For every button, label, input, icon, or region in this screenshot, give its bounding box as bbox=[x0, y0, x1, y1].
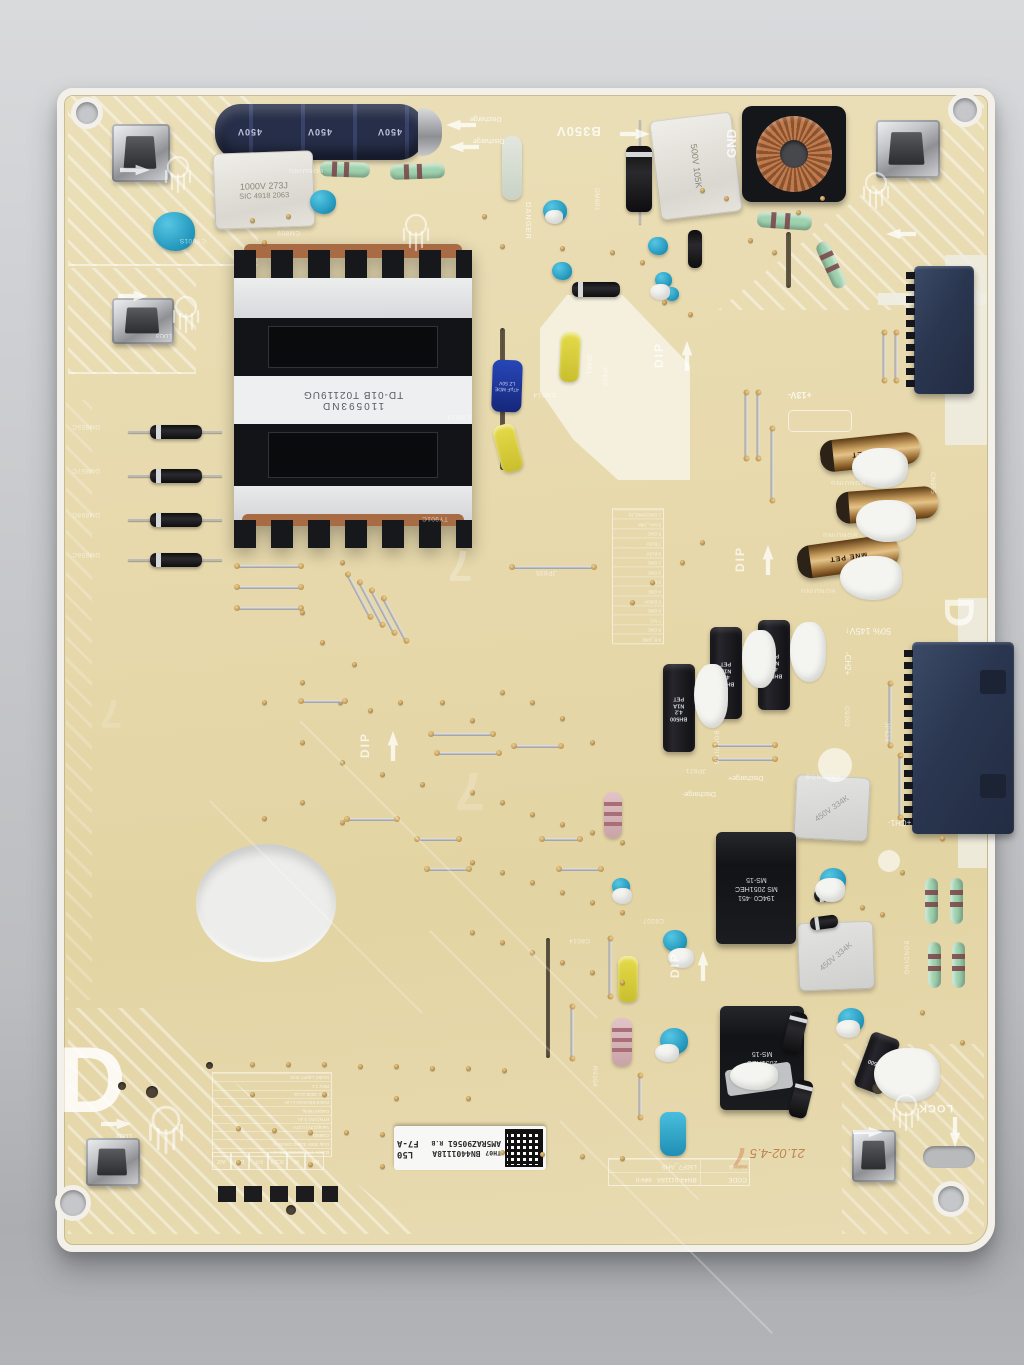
solder-pad bbox=[530, 812, 535, 817]
solder-pad bbox=[620, 840, 625, 845]
designator-text: JP821 bbox=[686, 767, 706, 774]
via-hole bbox=[146, 1086, 158, 1098]
jumper-wire bbox=[348, 818, 396, 821]
film-capacitor-334k: 450V 334K bbox=[797, 921, 875, 992]
via-hole bbox=[286, 1205, 296, 1215]
transformer-marking: MS-15 bbox=[752, 1050, 773, 1057]
sticker-serial: AM5RAZ90561 bbox=[448, 1139, 501, 1148]
segment-cell: VL bbox=[287, 1152, 306, 1170]
designator-label: CM813 bbox=[470, 412, 493, 430]
via-hole bbox=[206, 1062, 213, 1069]
jumper-wire bbox=[238, 607, 300, 610]
jumper-wire bbox=[302, 700, 344, 703]
solder-pad bbox=[820, 196, 825, 201]
silk-danger-label: DANGER bbox=[524, 202, 533, 240]
silk-gnd-label: GND bbox=[724, 129, 739, 158]
glue-blob bbox=[742, 630, 776, 688]
spec-row: Duty 380V 330Hz Dimming bbox=[213, 1139, 331, 1147]
silk-pin-table: 9 B_GND8 GND7 N.C6 GND5 B350V4 GND3 N.C2… bbox=[612, 508, 664, 644]
solder-pad bbox=[650, 580, 655, 585]
pin-table-row: 9 B13V bbox=[613, 547, 663, 557]
pin-table-row: 7 B13V bbox=[613, 538, 663, 548]
output-connector-large bbox=[912, 642, 1014, 834]
jumper-wire bbox=[432, 733, 492, 736]
cap-marking: 450V bbox=[307, 127, 332, 137]
film-cap-marking: 500V 105K bbox=[688, 143, 703, 188]
cap-marking: 450V bbox=[237, 127, 262, 137]
solder-pad bbox=[880, 912, 885, 917]
solder-pad bbox=[940, 836, 945, 841]
designator-label: DM801 bbox=[600, 180, 623, 198]
solder-pad bbox=[440, 700, 445, 705]
solder-pad bbox=[470, 718, 475, 723]
jumper-wire bbox=[515, 745, 560, 748]
designator-text: DM857C bbox=[72, 467, 100, 474]
solder-pad bbox=[286, 1062, 291, 1067]
solder-pad bbox=[560, 890, 565, 895]
silkscreen-dip-label: DIP bbox=[668, 976, 694, 994]
solder-pad bbox=[322, 1092, 327, 1097]
designator-label: JP835 bbox=[556, 568, 576, 586]
jumper-wire bbox=[560, 868, 600, 871]
qr-code bbox=[505, 1129, 543, 1167]
solder-pad bbox=[860, 905, 865, 910]
pin-table-row: 2 GND bbox=[613, 567, 663, 577]
jumper-wire bbox=[238, 565, 300, 568]
yellow-capacitor bbox=[559, 332, 582, 383]
jumper-wire bbox=[571, 1008, 574, 1058]
silkscreen-hatch-left-strip bbox=[66, 400, 92, 1000]
lps-transformer: 194C0 ·451 MS 2051HEC MS-15 bbox=[716, 832, 796, 944]
solder-pad bbox=[748, 238, 753, 243]
bonding-text: BONDING bbox=[713, 730, 719, 765]
transformer-core bbox=[234, 318, 472, 376]
pin-table-row: 5 GND bbox=[613, 528, 663, 538]
silk-spec-table: B350V 777 101/201 273H4ADuty 380V 330Hz … bbox=[212, 1072, 332, 1157]
designator-label: C8014 bbox=[590, 936, 611, 954]
designator-label: JP826 bbox=[890, 714, 910, 732]
solder-pad bbox=[262, 816, 267, 821]
designator-text: C9202 bbox=[843, 706, 850, 727]
solder-pad bbox=[394, 1064, 399, 1069]
silk-edge-letter: D bbox=[935, 597, 983, 627]
designator-label: JP850 bbox=[608, 358, 628, 376]
jumper-wire bbox=[757, 394, 760, 458]
solder-pad bbox=[380, 1164, 385, 1169]
solder-pad bbox=[590, 970, 595, 975]
solder-pad bbox=[502, 1068, 507, 1073]
mint-resistor bbox=[925, 878, 938, 924]
designator-label: CY801S bbox=[206, 236, 233, 254]
transformer-core-window bbox=[268, 326, 438, 368]
glue-blob bbox=[730, 1062, 778, 1090]
silk-ch2-label: -CH2+ bbox=[843, 652, 852, 675]
jumper-wire bbox=[895, 334, 898, 380]
solder-pad bbox=[394, 1096, 399, 1101]
solder-pad bbox=[272, 1128, 277, 1133]
watermark-text: 7 bbox=[448, 540, 472, 590]
pin-table-row: 8 GND bbox=[613, 624, 663, 634]
toroid-core-hole bbox=[780, 140, 808, 168]
standing-diode bbox=[626, 146, 652, 212]
sticker-rev: R.B bbox=[431, 1139, 443, 1147]
blue-radial-capacitor bbox=[660, 1112, 686, 1156]
hand-icon bbox=[168, 292, 204, 341]
solder-pad bbox=[540, 1152, 545, 1157]
axial-diode bbox=[150, 469, 202, 483]
solder-pad bbox=[322, 1062, 327, 1067]
transformer-label: TD-01B T02119UG 110593ND bbox=[234, 376, 472, 424]
transformer-bottom-pins bbox=[234, 520, 472, 548]
mounting-hole bbox=[76, 102, 98, 124]
solder-pad bbox=[724, 196, 729, 201]
ceramic-disc-capacitor bbox=[552, 262, 572, 280]
ceramic-disc-capacitor bbox=[310, 190, 336, 214]
jumper-wire bbox=[899, 757, 902, 817]
transformer-core bbox=[234, 424, 472, 486]
solder-pad bbox=[430, 1066, 435, 1071]
film-cap-marking: 450V 334K bbox=[813, 793, 851, 823]
designator-label: JP821 bbox=[706, 766, 726, 784]
solder-pad bbox=[960, 1040, 965, 1045]
silk-segment-row: R/PVL3CE1F/T1B/IA/Z bbox=[212, 1152, 324, 1170]
silk-145v-label: 50% 145V↑ bbox=[845, 626, 891, 636]
solder-pad bbox=[610, 250, 615, 255]
spec-row: RTN(13V) 3.4A bbox=[213, 1114, 331, 1122]
transformer-marking: 194C0 ·451 bbox=[738, 894, 775, 901]
designator-label: TY901C bbox=[448, 514, 474, 532]
jumper-wire bbox=[543, 838, 579, 841]
solder-pad bbox=[236, 1160, 241, 1165]
designator-label: DM857C bbox=[100, 466, 128, 484]
metal-lug-clip bbox=[86, 1138, 140, 1186]
solder-pad bbox=[620, 910, 625, 915]
axial-diode bbox=[150, 553, 202, 567]
glue-blob bbox=[836, 1020, 860, 1038]
spec-row: Output rating bbox=[213, 1106, 331, 1114]
glue-blob bbox=[856, 500, 916, 542]
silkscreen-dip-label: DIP bbox=[358, 756, 384, 774]
designator-text: JP851 bbox=[585, 354, 592, 374]
silk-outline-box bbox=[788, 410, 852, 432]
solder-pad bbox=[380, 1132, 385, 1137]
designator-text: R9104 bbox=[591, 1066, 598, 1087]
solder-pad bbox=[250, 1062, 255, 1067]
transformer-tape bbox=[234, 278, 472, 318]
designator-label: DM858C bbox=[100, 510, 128, 528]
solder-pad bbox=[466, 1096, 471, 1101]
jumper-wire bbox=[418, 838, 458, 841]
designator-label: CM814 bbox=[556, 390, 579, 408]
glue-blob bbox=[612, 888, 632, 904]
watermark-seven: 7 bbox=[448, 540, 472, 590]
solder-pad bbox=[590, 830, 595, 835]
glue-blob bbox=[545, 210, 563, 224]
ceramic-disc-capacitor bbox=[648, 237, 668, 255]
axial-diode bbox=[572, 282, 620, 297]
board-cutout-hole bbox=[196, 844, 336, 962]
transformer-top-pins bbox=[234, 250, 472, 278]
code-table-row: ModelL50F7_AHS bbox=[609, 1159, 749, 1172]
solder-pad bbox=[358, 1064, 363, 1069]
mounting-hole bbox=[953, 98, 977, 122]
solder-pad bbox=[352, 662, 357, 667]
solder-pad bbox=[500, 244, 505, 249]
watermark-seven: 7 bbox=[455, 760, 485, 822]
mint-resistor bbox=[320, 161, 370, 178]
solder-pad bbox=[262, 700, 267, 705]
bonding-text: BONDING bbox=[800, 587, 835, 593]
mint-resistor bbox=[950, 878, 963, 924]
pin-table-row: 3 AAA_DIM bbox=[613, 519, 663, 529]
routed-slot bbox=[546, 938, 550, 1058]
ceramic-resistor bbox=[502, 136, 522, 200]
jumper-wire bbox=[745, 394, 748, 458]
designator-text: JP826 bbox=[883, 722, 890, 742]
silk-13v-label: +13V- bbox=[788, 390, 812, 400]
solder-pad bbox=[680, 560, 685, 565]
ceramic-disc-capacitor bbox=[153, 212, 195, 251]
film-capacitor-105k: 500V 105K bbox=[649, 111, 743, 220]
toroid-inductor bbox=[742, 106, 846, 202]
spec-row: Model: L50F7 AHS bbox=[213, 1073, 331, 1081]
bonding-label: BONDING bbox=[288, 158, 323, 176]
designator-label: DM855C bbox=[100, 422, 128, 440]
silk-date-code: 21.02-4.5 bbox=[750, 1146, 805, 1161]
code-table-label: CODE bbox=[700, 1173, 747, 1185]
designator-text: TY901C bbox=[422, 515, 448, 522]
designator-label: C9207 bbox=[664, 916, 685, 934]
solder-pad bbox=[920, 1010, 925, 1015]
designator-text: CM813 bbox=[447, 413, 470, 420]
solder-pad bbox=[470, 860, 475, 865]
transformer-marking: MS 2051HEC bbox=[735, 885, 778, 892]
silkscreen-dip-label: DIP bbox=[733, 570, 759, 588]
black-electrolytic-capacitor: BH5004.2N1APET bbox=[663, 664, 695, 752]
bonding-text: BONDING bbox=[903, 940, 909, 975]
pin-table-row: 3 N.C bbox=[613, 576, 663, 586]
bonding-label: BONDING bbox=[822, 522, 857, 540]
solder-pad bbox=[470, 930, 475, 935]
pin-table-row: 9 B_GND bbox=[613, 634, 663, 644]
pin-table-row: 6 GND bbox=[613, 605, 663, 615]
connector-pins bbox=[906, 272, 915, 388]
bonding-text: BONDING bbox=[830, 479, 865, 485]
solder-pad bbox=[560, 822, 565, 827]
silk-discharge-label: Discharge bbox=[473, 137, 505, 144]
pin-table-row: 4 GND bbox=[613, 586, 663, 596]
segment-cell: F/T bbox=[249, 1152, 268, 1170]
connector-notch bbox=[980, 670, 1006, 694]
designator-text: JP850 bbox=[601, 366, 608, 386]
solder-pad bbox=[530, 700, 535, 705]
designator-label: C9202 bbox=[850, 698, 871, 716]
output-connector-small bbox=[914, 266, 974, 394]
solder-pad bbox=[500, 690, 505, 695]
solder-pad bbox=[560, 960, 565, 965]
jumper-wire bbox=[716, 758, 774, 761]
solder-pad bbox=[662, 300, 667, 305]
bonding-label: BONDING bbox=[698, 736, 733, 754]
solder-pad bbox=[590, 740, 595, 745]
bonding-text: BONDING bbox=[288, 167, 323, 173]
solder-pad bbox=[500, 1150, 505, 1155]
transformer-core-window bbox=[268, 432, 438, 478]
silk-discharge-minus: Discharge- bbox=[682, 790, 716, 797]
designator-text: CN855 bbox=[929, 472, 936, 494]
glue-blob bbox=[650, 284, 670, 300]
silk-discharge-plus: Discharge+ bbox=[728, 774, 764, 781]
axial-diode bbox=[150, 513, 202, 527]
spec-row: Date: 2020.12.01 bbox=[213, 1090, 331, 1098]
solder-pad bbox=[620, 980, 625, 985]
pin-table-row: 7 N.C bbox=[613, 615, 663, 625]
solder-pad bbox=[772, 250, 777, 255]
solder-pad bbox=[236, 1126, 241, 1131]
hand-icon bbox=[888, 1090, 924, 1139]
bonding-label: BONDING bbox=[800, 578, 835, 596]
connector-notch bbox=[980, 774, 1006, 798]
transformer-label-line: 110593ND bbox=[321, 400, 384, 411]
solder-pad bbox=[580, 1154, 585, 1159]
standing-diode bbox=[688, 230, 702, 268]
hand-icon bbox=[398, 210, 434, 259]
film-cap-marking: 450V 334K bbox=[818, 940, 854, 972]
solder-pad bbox=[308, 1130, 313, 1135]
watermark-seven: 7 bbox=[732, 1140, 749, 1174]
jumper-wire bbox=[639, 1077, 642, 1117]
mint-resistor bbox=[390, 163, 445, 180]
sticker-panel: L50 bbox=[397, 1149, 413, 1159]
watermark-text: 7 bbox=[455, 760, 485, 822]
mint-resistor bbox=[928, 942, 941, 988]
watermark-text: 7 bbox=[732, 1140, 749, 1174]
glue-blob bbox=[790, 622, 826, 682]
jumper-wire bbox=[238, 586, 300, 589]
mounting-hole bbox=[938, 1186, 964, 1212]
film-cap-marking: SIC 4918 2063 bbox=[239, 190, 289, 201]
axial-diode bbox=[150, 425, 202, 439]
solder-pad bbox=[500, 800, 505, 805]
designator-label: CM809 bbox=[300, 228, 323, 246]
board-slot-gray bbox=[923, 1146, 975, 1168]
bonding-label: BONDING bbox=[888, 946, 923, 964]
solder-pad bbox=[688, 312, 693, 317]
silkscreen-circle-pad bbox=[818, 748, 852, 782]
solder-pad bbox=[560, 716, 565, 721]
main-transformer: TD-01B T02119UG 110593ND bbox=[234, 250, 472, 548]
solder-pad bbox=[262, 240, 267, 245]
solder-pad bbox=[300, 680, 305, 685]
pin-table-row: 1 GND bbox=[613, 557, 663, 567]
silk-corner-letter: D bbox=[58, 1026, 126, 1134]
sticker-code: BN4401118A bbox=[432, 1149, 480, 1158]
glue-blob bbox=[840, 556, 902, 600]
silk-b350v-label: B350V bbox=[556, 124, 601, 139]
blue-cap-marking: 47µF MDE bbox=[495, 386, 519, 393]
pink-ceramic-resistor bbox=[604, 792, 622, 838]
solder-pad bbox=[340, 560, 345, 565]
designator-text: CM814 bbox=[533, 391, 556, 398]
solder-pad bbox=[530, 880, 535, 885]
solder-pad bbox=[482, 214, 487, 219]
solder-pad bbox=[560, 246, 565, 251]
bonding-label: BONDING bbox=[830, 470, 865, 488]
segment-cell: A/Z bbox=[212, 1152, 231, 1170]
solder-pad bbox=[500, 940, 505, 945]
silk-discharge-label: Discharge bbox=[470, 115, 502, 122]
designator-text: DM856C bbox=[72, 551, 100, 558]
glue-blob bbox=[655, 1044, 679, 1062]
hand-icon bbox=[143, 1101, 190, 1165]
spec-row: REV 1.1 bbox=[213, 1081, 331, 1089]
bonding-text: BONDING bbox=[822, 531, 857, 537]
designator-text: CM809 bbox=[277, 229, 300, 236]
film-capacitor-334k: 450V 334K bbox=[793, 774, 870, 842]
transformer-label-line: TD-01B T02119UG bbox=[303, 389, 403, 400]
photo-scene: 450V 450V 450V 1000V 273J SIC 4918 2063 … bbox=[0, 0, 1024, 1365]
designator-text: DM858C bbox=[72, 511, 100, 518]
solder-pad bbox=[900, 870, 905, 875]
solder-pad bbox=[640, 260, 645, 265]
jumper-wire bbox=[883, 334, 886, 380]
segment-cell: 3CE1 bbox=[268, 1152, 287, 1170]
jumper-wire bbox=[771, 430, 774, 500]
solder-pad bbox=[500, 870, 505, 875]
solder-pad bbox=[300, 800, 305, 805]
mint-resistor bbox=[952, 942, 965, 988]
serial-sticker: TH07 BN4401118A AM5RAZ90561 R.B L50 F7-A bbox=[394, 1126, 546, 1170]
solder-pad bbox=[300, 740, 305, 745]
designator-text: DM855C bbox=[72, 423, 100, 430]
solder-pad bbox=[344, 1130, 349, 1135]
pin-table-row: 5 B350V bbox=[613, 595, 663, 605]
yellow-capacitor bbox=[618, 956, 638, 1002]
spec-row: Rated Electronics Lim bbox=[213, 1098, 331, 1106]
solder-pad bbox=[590, 900, 595, 905]
sticker-version: F7-A bbox=[397, 1138, 419, 1148]
sticker-th: TH07 bbox=[485, 1149, 501, 1157]
code-table-value: L50F7_AHS bbox=[611, 1160, 700, 1172]
silkscreen-circle-pad bbox=[878, 850, 900, 872]
via-hole bbox=[118, 1082, 126, 1090]
solder-pad bbox=[250, 218, 255, 223]
hand-icon bbox=[858, 168, 894, 217]
connector-pins bbox=[904, 650, 913, 828]
designator-text: CY801S bbox=[179, 237, 206, 244]
silkscreen-dip-label: DIP bbox=[652, 366, 678, 384]
hand-icon bbox=[160, 152, 196, 201]
solder-pad bbox=[700, 540, 705, 545]
solder-pad bbox=[420, 782, 425, 787]
solder-pad bbox=[796, 210, 801, 215]
solder-pad bbox=[320, 640, 325, 645]
solder-pad bbox=[250, 1092, 255, 1097]
cap-marking: 450V bbox=[377, 127, 402, 137]
designator-label: R9104 bbox=[598, 1058, 619, 1076]
routed-slot bbox=[786, 232, 791, 288]
jumper-wire bbox=[438, 752, 498, 755]
designator-text: C8014 bbox=[569, 937, 590, 944]
solder-pad bbox=[700, 188, 705, 193]
designator-label: DM856C bbox=[100, 550, 128, 568]
pin-table-row: 1 GND(SHIELD) bbox=[613, 509, 663, 519]
solder-pad bbox=[308, 1162, 313, 1167]
designator-text: JP835 bbox=[536, 569, 556, 576]
designator-label: CN855 bbox=[936, 464, 958, 482]
glue-blob bbox=[694, 664, 728, 728]
designator-text: C9207 bbox=[643, 917, 664, 924]
